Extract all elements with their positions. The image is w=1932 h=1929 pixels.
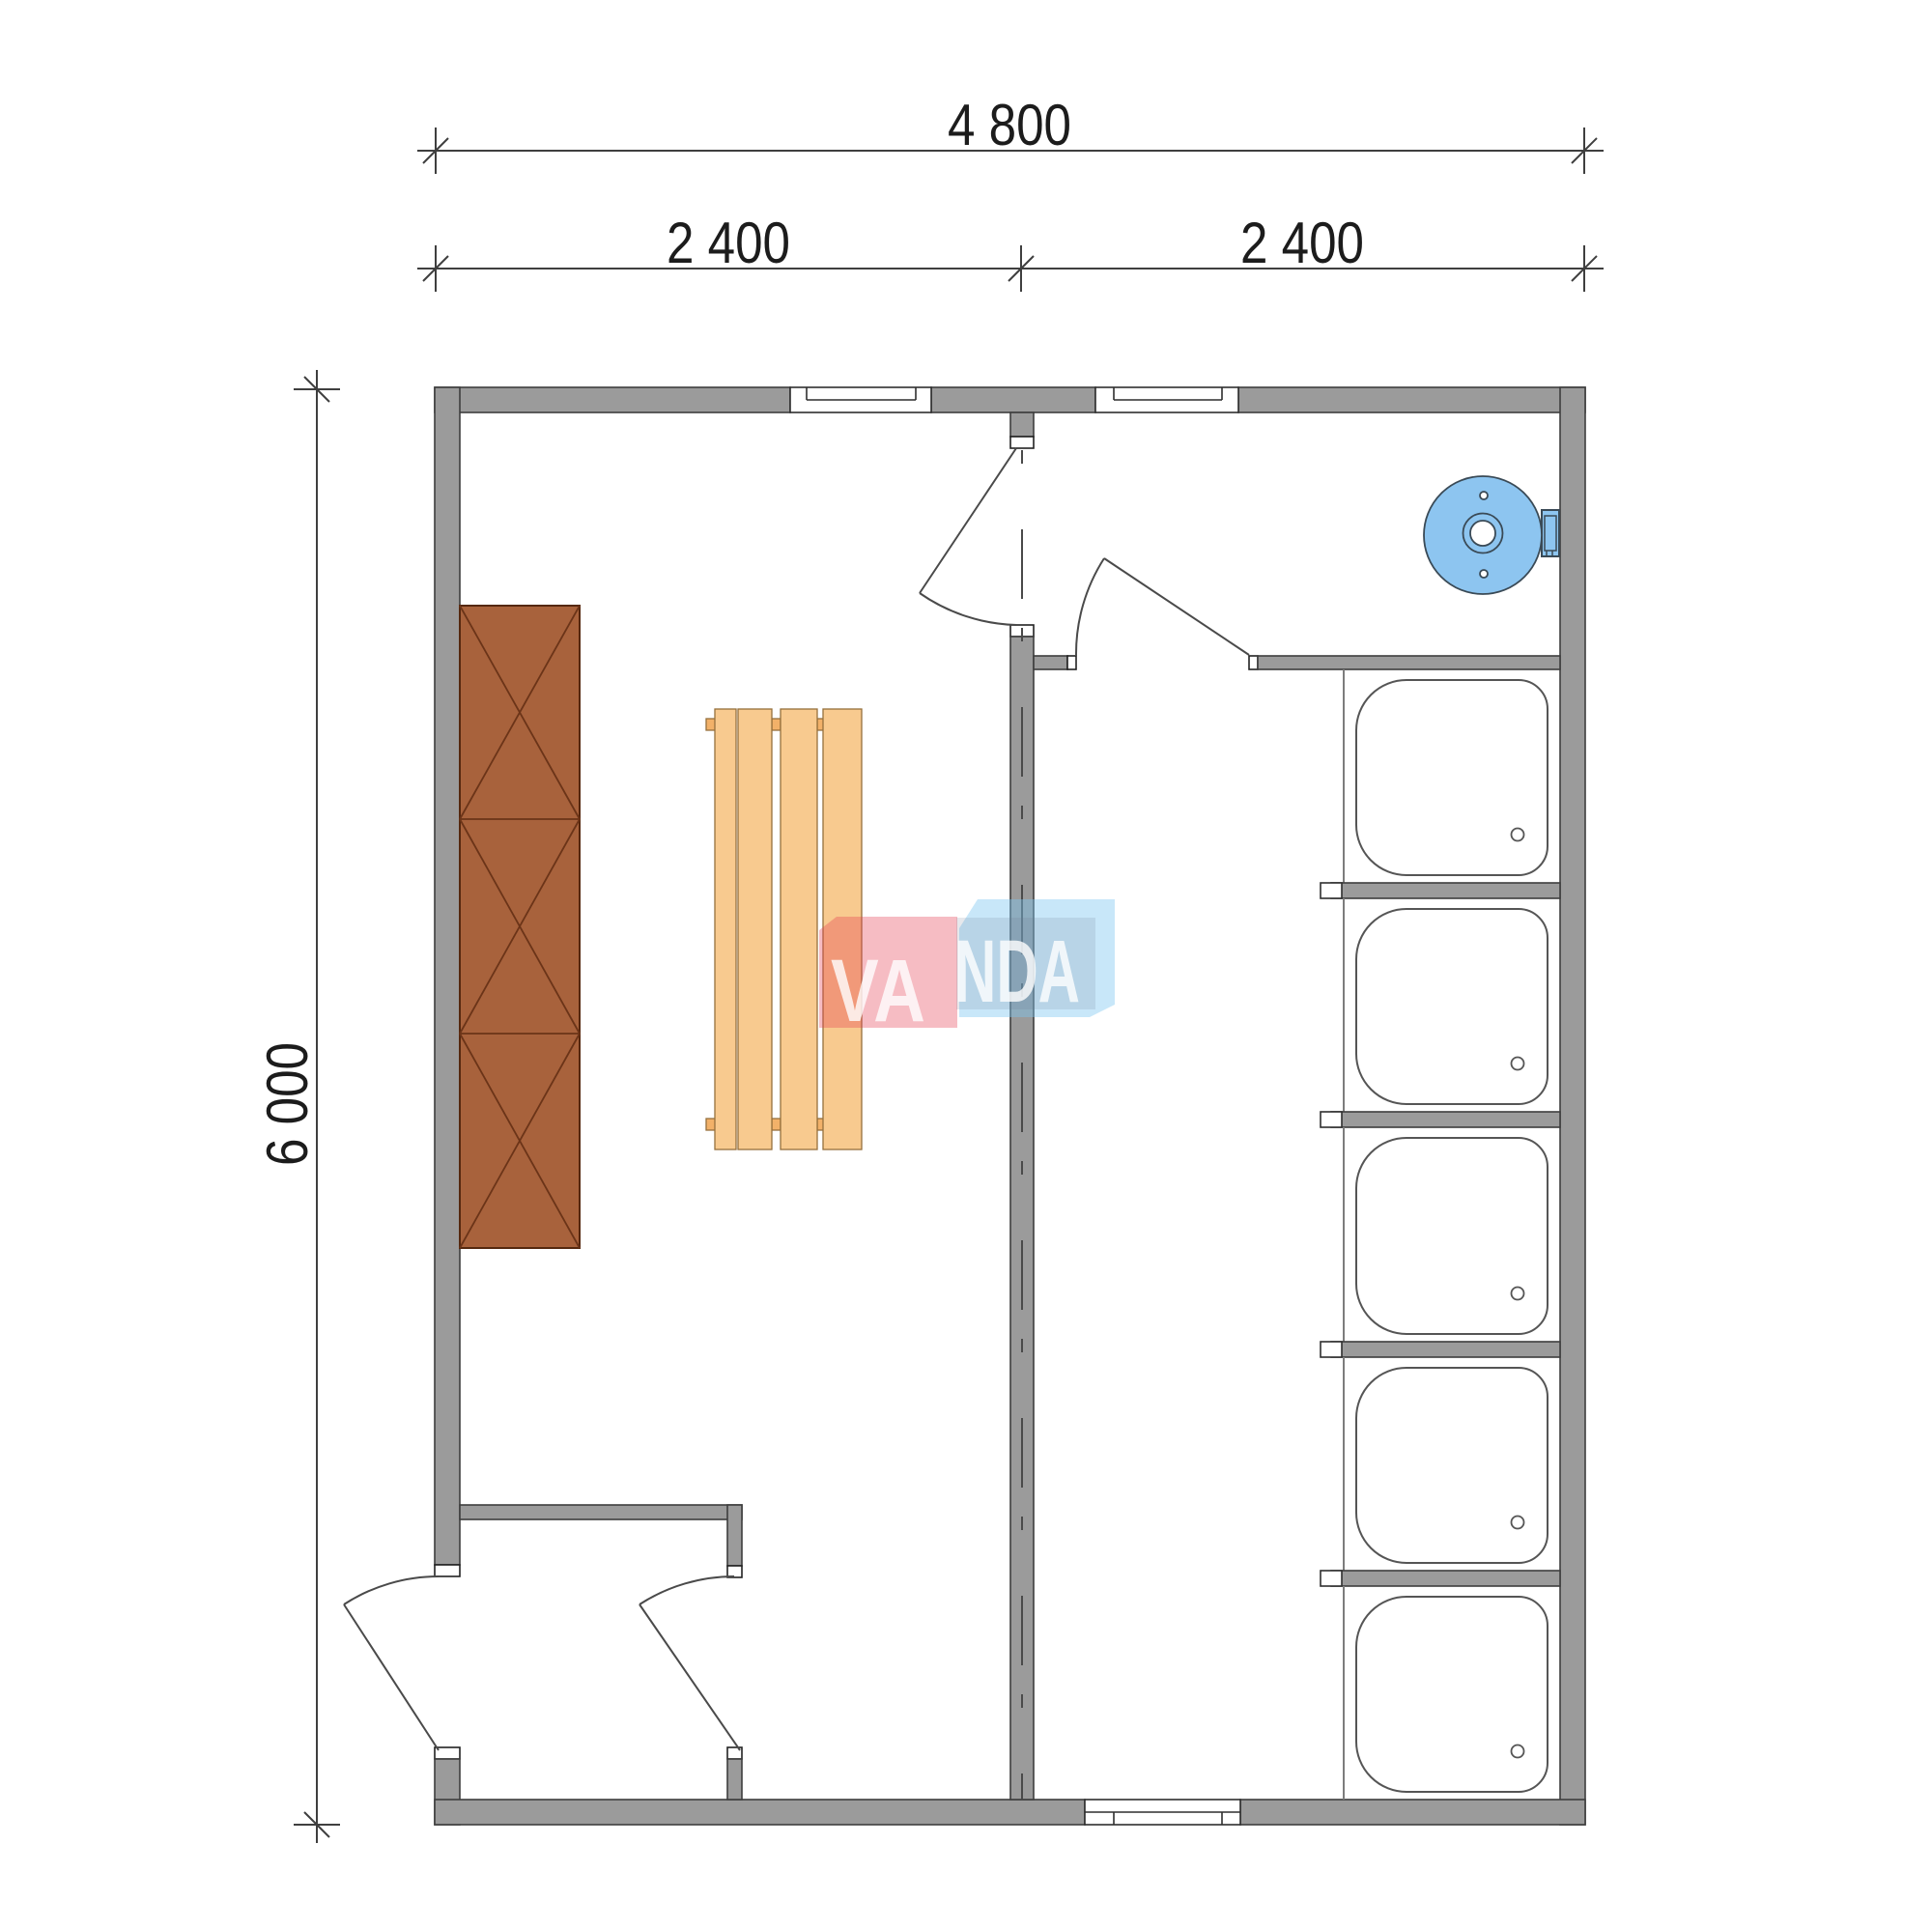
svg-text:2 400: 2 400 [1240, 211, 1364, 275]
svg-text:2 400: 2 400 [667, 211, 790, 275]
svg-text:4 800: 4 800 [948, 93, 1071, 157]
svg-text:NDA: NDA [954, 922, 1080, 1021]
svg-text:VA: VA [831, 942, 925, 1040]
svg-text:6 000: 6 000 [255, 1042, 320, 1166]
